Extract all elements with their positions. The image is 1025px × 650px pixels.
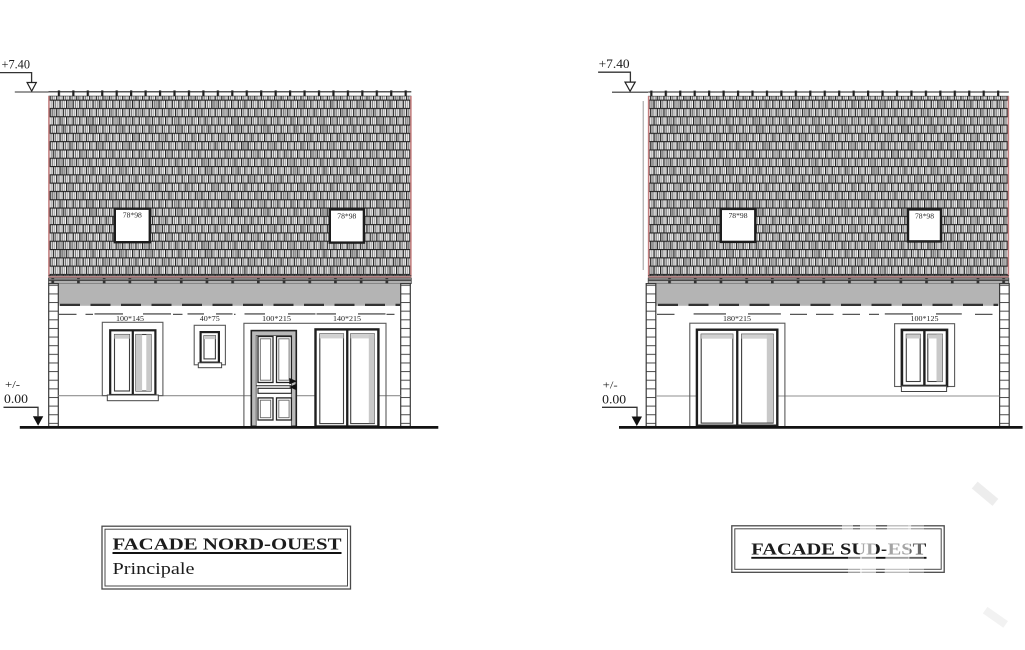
svg-text:78*98: 78*98 — [915, 213, 935, 220]
svg-text:+7.40: +7.40 — [599, 57, 630, 71]
svg-text:100*125: 100*125 — [911, 315, 939, 323]
svg-text:140*215: 140*215 — [333, 315, 361, 323]
svg-text:100*215: 100*215 — [262, 315, 291, 323]
svg-text:Principale: Principale — [113, 559, 195, 578]
svg-text:78*98: 78*98 — [337, 213, 357, 220]
svg-text:+/-: +/- — [5, 380, 21, 391]
svg-text:+/-: +/- — [603, 381, 619, 392]
svg-text:+7.40: +7.40 — [2, 57, 31, 71]
svg-text:78*98: 78*98 — [729, 213, 749, 220]
svg-text:180*215: 180*215 — [723, 315, 751, 323]
svg-text:100*145: 100*145 — [116, 315, 144, 323]
svg-text:0.00: 0.00 — [602, 392, 626, 406]
svg-text:78*98: 78*98 — [123, 213, 143, 220]
svg-text:40*75: 40*75 — [200, 315, 220, 323]
svg-text:0.00: 0.00 — [4, 392, 28, 406]
svg-text:FACADE NORD-OUEST: FACADE NORD-OUEST — [113, 535, 343, 554]
